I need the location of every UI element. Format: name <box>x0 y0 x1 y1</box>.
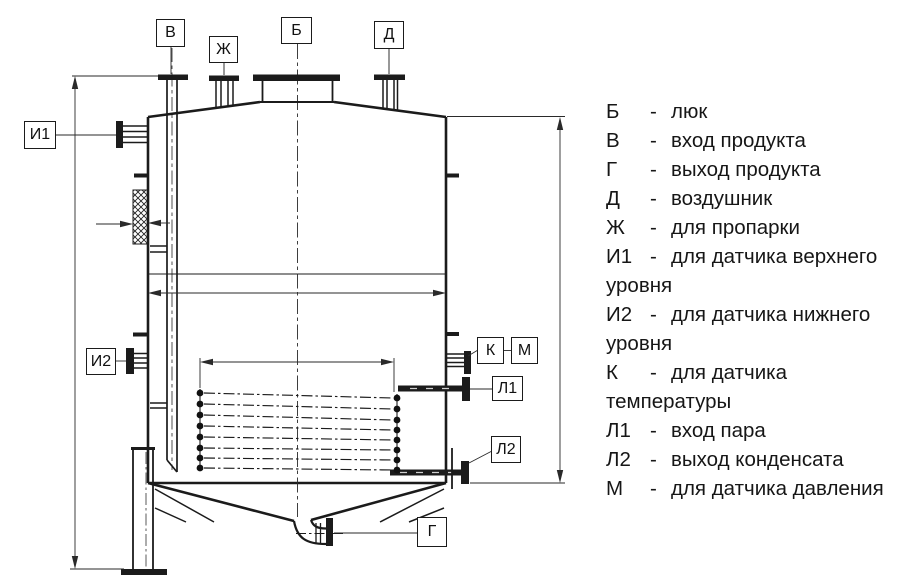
steam-inlet-pipe <box>398 377 470 401</box>
legend-key: Ж <box>606 216 650 240</box>
legend-description: выход конденсата <box>671 448 918 472</box>
temperature-nozzle <box>446 351 471 374</box>
legend-separator: - <box>650 448 671 472</box>
legend-description: вход продукта <box>671 129 918 153</box>
callout-label: Л1 <box>498 381 517 397</box>
legend-description: для датчика верхнего <box>671 245 918 269</box>
callout-label: Б <box>291 23 302 39</box>
legend: Б-люк В-вход продукта Г-выход продукта Д… <box>606 97 918 503</box>
lower-level-nozzle <box>126 348 148 374</box>
legend-separator: - <box>650 216 671 240</box>
legend-key: Л1 <box>606 419 650 443</box>
legend-description: воздушник <box>671 187 918 211</box>
legend-description: для пропарки <box>671 216 918 240</box>
legend-description: вход пара <box>671 419 918 443</box>
legend-key: В <box>606 129 650 153</box>
legend-row: В-вход продукта <box>606 126 918 155</box>
manhole-nozzle <box>253 75 340 103</box>
legend-description: уровня <box>606 274 672 297</box>
bottom-outlet-elbow <box>294 518 345 546</box>
vent-nozzle <box>374 49 405 111</box>
legend-row-wrap: уровня <box>606 329 918 358</box>
legend-row: Ж-для пропарки <box>606 213 918 242</box>
callout-label: Ж <box>216 42 231 58</box>
callout-steaming: Ж <box>209 36 238 63</box>
callout-condensate-outlet: Л2 <box>491 436 521 463</box>
coil-tubes <box>204 393 393 470</box>
callout-label: В <box>165 25 176 41</box>
legend-row: М-для датчика давления <box>606 474 918 503</box>
callout-label: Д <box>384 27 395 43</box>
diameter-dimension <box>148 290 446 296</box>
legend-key: Л2 <box>606 448 650 472</box>
leg-gusset-left <box>155 489 214 522</box>
upper-level-nozzle <box>116 121 148 148</box>
callout-label: М <box>518 343 531 359</box>
legend-separator: - <box>650 158 671 182</box>
callout-label: К <box>486 343 495 359</box>
legend-separator: - <box>650 477 671 501</box>
legend-description: люк <box>671 100 918 124</box>
legend-separator: - <box>650 303 671 327</box>
legend-description: для датчика <box>671 361 918 385</box>
legend-row-wrap: уровня <box>606 271 918 300</box>
coil-tube-ends <box>197 390 401 474</box>
vessel-shell <box>133 102 459 521</box>
legend-row: Б-люк <box>606 97 918 126</box>
height-dimension-left <box>70 76 158 569</box>
legend-row: Д-воздушник <box>606 184 918 213</box>
callout-steam-inlet: Л1 <box>492 376 523 401</box>
legend-separator: - <box>650 361 671 385</box>
coil-width-dimension <box>200 358 394 392</box>
legend-key: Д <box>606 187 650 211</box>
legend-separator: - <box>650 129 671 153</box>
legend-separator: - <box>650 187 671 211</box>
legend-row-wrap: температуры <box>606 387 918 416</box>
callout-leaders <box>56 47 512 533</box>
height-dimension-right <box>447 117 565 484</box>
callout-upper-level: И1 <box>24 121 56 149</box>
legend-separator: - <box>650 100 671 124</box>
callout-vent: Д <box>374 21 404 49</box>
callout-label: И2 <box>91 354 111 370</box>
legend-key: Б <box>606 100 650 124</box>
legend-row: Г-выход продукта <box>606 155 918 184</box>
legend-key: М <box>606 477 650 501</box>
legend-row: К-для датчика <box>606 358 918 387</box>
callout-temperature: К <box>477 337 504 364</box>
pipe-bracket-upper <box>150 246 167 252</box>
callout-label: И1 <box>30 127 50 143</box>
legend-description: для датчика давления <box>671 477 918 501</box>
legend-description: выход продукта <box>671 158 918 182</box>
callout-product-outlet: Г <box>417 517 447 547</box>
legend-key: И1 <box>606 245 650 269</box>
legend-description: температуры <box>606 390 731 413</box>
legend-separator: - <box>650 419 671 443</box>
legend-key: И2 <box>606 303 650 327</box>
legend-description: для датчика нижнего <box>671 303 918 327</box>
condensate-outlet-pipe <box>390 461 469 484</box>
legend-row: Л2-выход конденсата <box>606 445 918 474</box>
heating-coil <box>197 389 401 473</box>
legend-key: К <box>606 361 650 385</box>
callout-pressure: М <box>511 337 538 364</box>
legend-key: Г <box>606 158 650 182</box>
pipe-bracket-lower <box>150 403 167 408</box>
legend-separator: - <box>650 245 671 269</box>
legend-row: Л1-вход пара <box>606 416 918 445</box>
callout-label: Г <box>428 524 437 540</box>
legend-row: И1-для датчика верхнего <box>606 242 918 271</box>
callout-manhole: Б <box>281 17 312 44</box>
callout-product-inlet: В <box>156 19 185 47</box>
steaming-nozzle <box>209 63 239 108</box>
legend-row: И2-для датчика нижнего <box>606 300 918 329</box>
legend-description: уровня <box>606 332 672 355</box>
callout-lower-level: И2 <box>86 348 116 375</box>
technical-drawing-page: В Ж Б Д И1 И2 К М Л1 Л2 Г Б-люк В-вход п… <box>0 0 921 576</box>
hatched-detail <box>96 190 170 244</box>
callout-label: Л2 <box>496 442 515 458</box>
